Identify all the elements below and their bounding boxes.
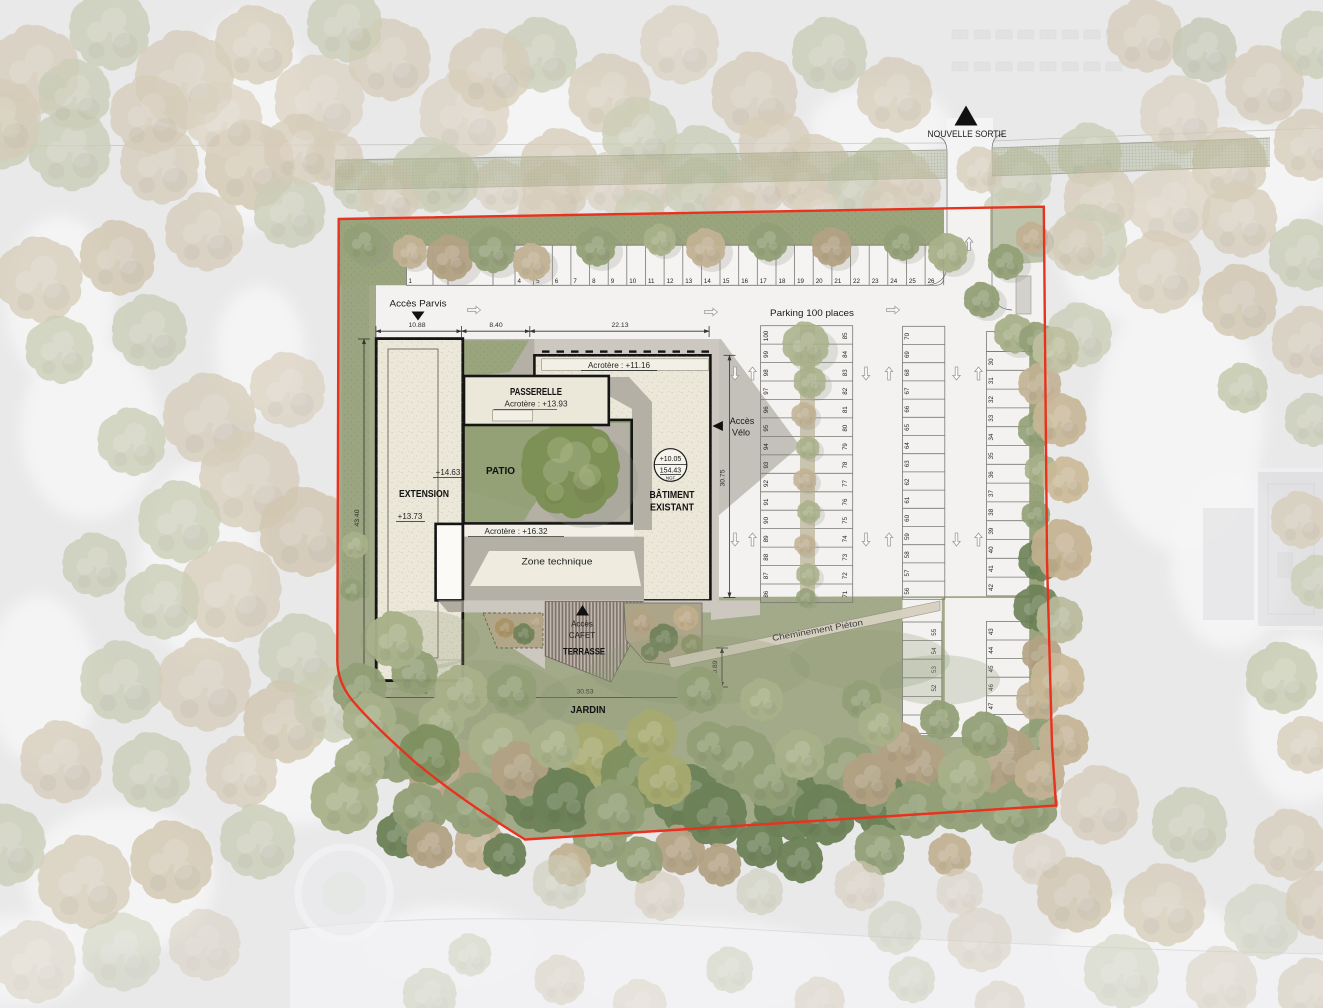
svg-text:19: 19 xyxy=(797,278,804,285)
svg-text:40: 40 xyxy=(988,546,995,553)
svg-text:+10.05: +10.05 xyxy=(660,456,682,463)
svg-text:8.40: 8.40 xyxy=(489,322,502,329)
svg-text:Acrotère : +11.16: Acrotère : +11.16 xyxy=(588,361,651,370)
svg-text:NOUVELLE SORTIE: NOUVELLE SORTIE xyxy=(928,129,1007,140)
svg-text:74: 74 xyxy=(842,535,849,542)
svg-text:61: 61 xyxy=(904,496,911,503)
svg-text:32: 32 xyxy=(988,396,995,403)
svg-text:69: 69 xyxy=(904,351,911,358)
svg-text:14: 14 xyxy=(704,278,711,285)
svg-text:63: 63 xyxy=(904,460,911,467)
svg-text:47: 47 xyxy=(988,702,995,709)
svg-text:72: 72 xyxy=(842,572,849,579)
svg-text:97: 97 xyxy=(763,387,770,394)
svg-text:24: 24 xyxy=(890,278,897,285)
svg-text:23: 23 xyxy=(872,278,879,285)
svg-text:17: 17 xyxy=(760,278,767,285)
svg-text:77: 77 xyxy=(842,480,849,487)
svg-text:7: 7 xyxy=(573,278,577,285)
svg-text:94: 94 xyxy=(763,443,770,450)
svg-text:100: 100 xyxy=(763,330,770,341)
svg-text:34: 34 xyxy=(988,433,995,440)
svg-text:BÂTIMENT: BÂTIMENT xyxy=(650,488,695,501)
svg-text:25: 25 xyxy=(909,278,916,285)
svg-text:99: 99 xyxy=(763,350,770,357)
svg-text:93: 93 xyxy=(763,461,770,468)
svg-text:91: 91 xyxy=(763,498,770,505)
svg-text:31: 31 xyxy=(988,377,995,384)
svg-text:+13.73: +13.73 xyxy=(398,512,423,521)
svg-text:NGF: NGF xyxy=(666,476,676,481)
svg-text:71: 71 xyxy=(842,590,849,597)
svg-text:58: 58 xyxy=(904,551,911,558)
svg-text:44: 44 xyxy=(988,646,995,653)
svg-text:89: 89 xyxy=(763,535,770,542)
svg-text:65: 65 xyxy=(904,423,911,430)
svg-text:Acrotère : +16.32: Acrotère : +16.32 xyxy=(485,527,549,536)
svg-text:PASSERELLE: PASSERELLE xyxy=(510,387,562,398)
svg-text:79: 79 xyxy=(842,443,849,450)
svg-text:67: 67 xyxy=(904,387,911,394)
svg-text:62: 62 xyxy=(904,478,911,485)
svg-text:60: 60 xyxy=(904,514,911,521)
svg-text:30.75: 30.75 xyxy=(720,469,727,486)
svg-text:98: 98 xyxy=(763,369,770,376)
svg-text:6: 6 xyxy=(555,278,559,285)
svg-text:22: 22 xyxy=(853,278,860,285)
svg-text:22.13: 22.13 xyxy=(611,322,628,329)
svg-text:78: 78 xyxy=(842,461,849,468)
svg-text:64: 64 xyxy=(904,442,911,449)
svg-text:88: 88 xyxy=(763,553,770,560)
svg-text:13: 13 xyxy=(685,278,692,285)
svg-text:Parking 100 places: Parking 100 places xyxy=(770,308,854,319)
svg-text:21: 21 xyxy=(834,278,841,285)
svg-text:16: 16 xyxy=(741,278,748,285)
svg-text:Acrotère : +13.93: Acrotère : +13.93 xyxy=(505,400,569,409)
svg-text:33: 33 xyxy=(988,414,995,421)
svg-text:36: 36 xyxy=(988,471,995,478)
svg-text:56: 56 xyxy=(904,587,911,594)
svg-text:92: 92 xyxy=(763,480,770,487)
svg-text:68: 68 xyxy=(904,369,911,376)
svg-text:96: 96 xyxy=(763,406,770,413)
svg-text:8: 8 xyxy=(592,278,596,285)
svg-text:84: 84 xyxy=(842,350,849,357)
svg-text:Zone technique: Zone technique xyxy=(522,557,593,568)
svg-text:39: 39 xyxy=(988,527,995,534)
svg-text:87: 87 xyxy=(763,572,770,579)
svg-text:10: 10 xyxy=(629,278,636,285)
svg-text:70: 70 xyxy=(904,332,911,339)
svg-text:43.40: 43.40 xyxy=(354,509,361,526)
svg-text:82: 82 xyxy=(842,387,849,394)
svg-text:42: 42 xyxy=(988,584,995,591)
svg-text:73: 73 xyxy=(842,553,849,560)
svg-text:30: 30 xyxy=(988,358,995,365)
svg-text:86: 86 xyxy=(763,590,770,597)
svg-text:Accès Parvis: Accès Parvis xyxy=(390,299,448,309)
svg-text:TERRASSE: TERRASSE xyxy=(563,647,605,658)
svg-text:9: 9 xyxy=(611,278,615,285)
svg-text:EXISTANT: EXISTANT xyxy=(650,503,694,514)
svg-text:+14.63: +14.63 xyxy=(436,468,461,477)
svg-text:75: 75 xyxy=(842,516,849,523)
svg-text:12: 12 xyxy=(667,278,674,285)
svg-text:CAFET: CAFET xyxy=(569,631,595,640)
svg-text:15: 15 xyxy=(723,278,730,285)
svg-text:83: 83 xyxy=(842,369,849,376)
svg-text:1: 1 xyxy=(409,278,413,285)
svg-text:55: 55 xyxy=(931,628,938,635)
svg-text:38: 38 xyxy=(988,508,995,515)
svg-text:Accès: Accès xyxy=(730,416,755,426)
svg-text:EXTENSION: EXTENSION xyxy=(399,489,449,500)
svg-text:PATIO: PATIO xyxy=(486,466,515,477)
svg-text:154.43: 154.43 xyxy=(660,468,682,475)
svg-text:80: 80 xyxy=(842,424,849,431)
svg-text:10.88: 10.88 xyxy=(408,322,425,329)
svg-text:4: 4 xyxy=(518,278,522,285)
svg-text:37: 37 xyxy=(988,490,995,497)
svg-text:41: 41 xyxy=(988,565,995,572)
svg-text:57: 57 xyxy=(904,569,911,576)
svg-text:59: 59 xyxy=(904,533,911,540)
svg-text:18: 18 xyxy=(779,278,786,285)
svg-text:43: 43 xyxy=(988,628,995,635)
svg-text:Vélo: Vélo xyxy=(732,428,750,438)
svg-text:90: 90 xyxy=(763,516,770,523)
svg-text:20: 20 xyxy=(816,278,823,285)
svg-text:35: 35 xyxy=(988,452,995,459)
svg-text:JARDIN: JARDIN xyxy=(571,705,606,716)
svg-text:11: 11 xyxy=(648,278,655,285)
svg-text:85: 85 xyxy=(842,332,849,339)
svg-text:76: 76 xyxy=(842,498,849,505)
svg-text:81: 81 xyxy=(842,406,849,413)
svg-text:95: 95 xyxy=(763,424,770,431)
svg-text:66: 66 xyxy=(904,405,911,412)
svg-text:Accès: Accès xyxy=(571,620,593,629)
